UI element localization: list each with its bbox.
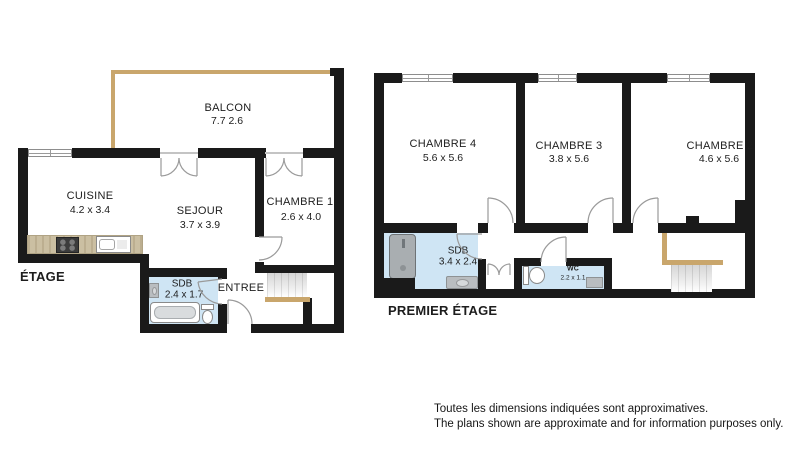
door-arc <box>161 158 179 176</box>
door-arc <box>541 237 566 262</box>
disclaimer-line-fr: Toutes les dimensions indiquées sont app… <box>434 402 708 417</box>
door-arc <box>266 158 284 176</box>
floor-plan-page: { "etage": { "title": "ÉTAGE", "rooms": … <box>0 0 800 450</box>
door-arc <box>633 198 658 223</box>
door-arc <box>179 158 197 176</box>
door-arc <box>259 237 282 260</box>
door-leaf <box>198 279 222 282</box>
door-arc <box>284 158 302 176</box>
door-arc <box>499 264 510 275</box>
door-arc <box>588 198 613 223</box>
door-swing-overlay <box>0 0 800 450</box>
door-arc <box>228 300 252 324</box>
disclaimer-line-en: The plans shown are approximate and for … <box>434 417 783 432</box>
door-arc <box>457 234 482 259</box>
door-arc <box>488 198 513 223</box>
door-arc <box>488 264 499 275</box>
door-arc <box>198 282 222 304</box>
